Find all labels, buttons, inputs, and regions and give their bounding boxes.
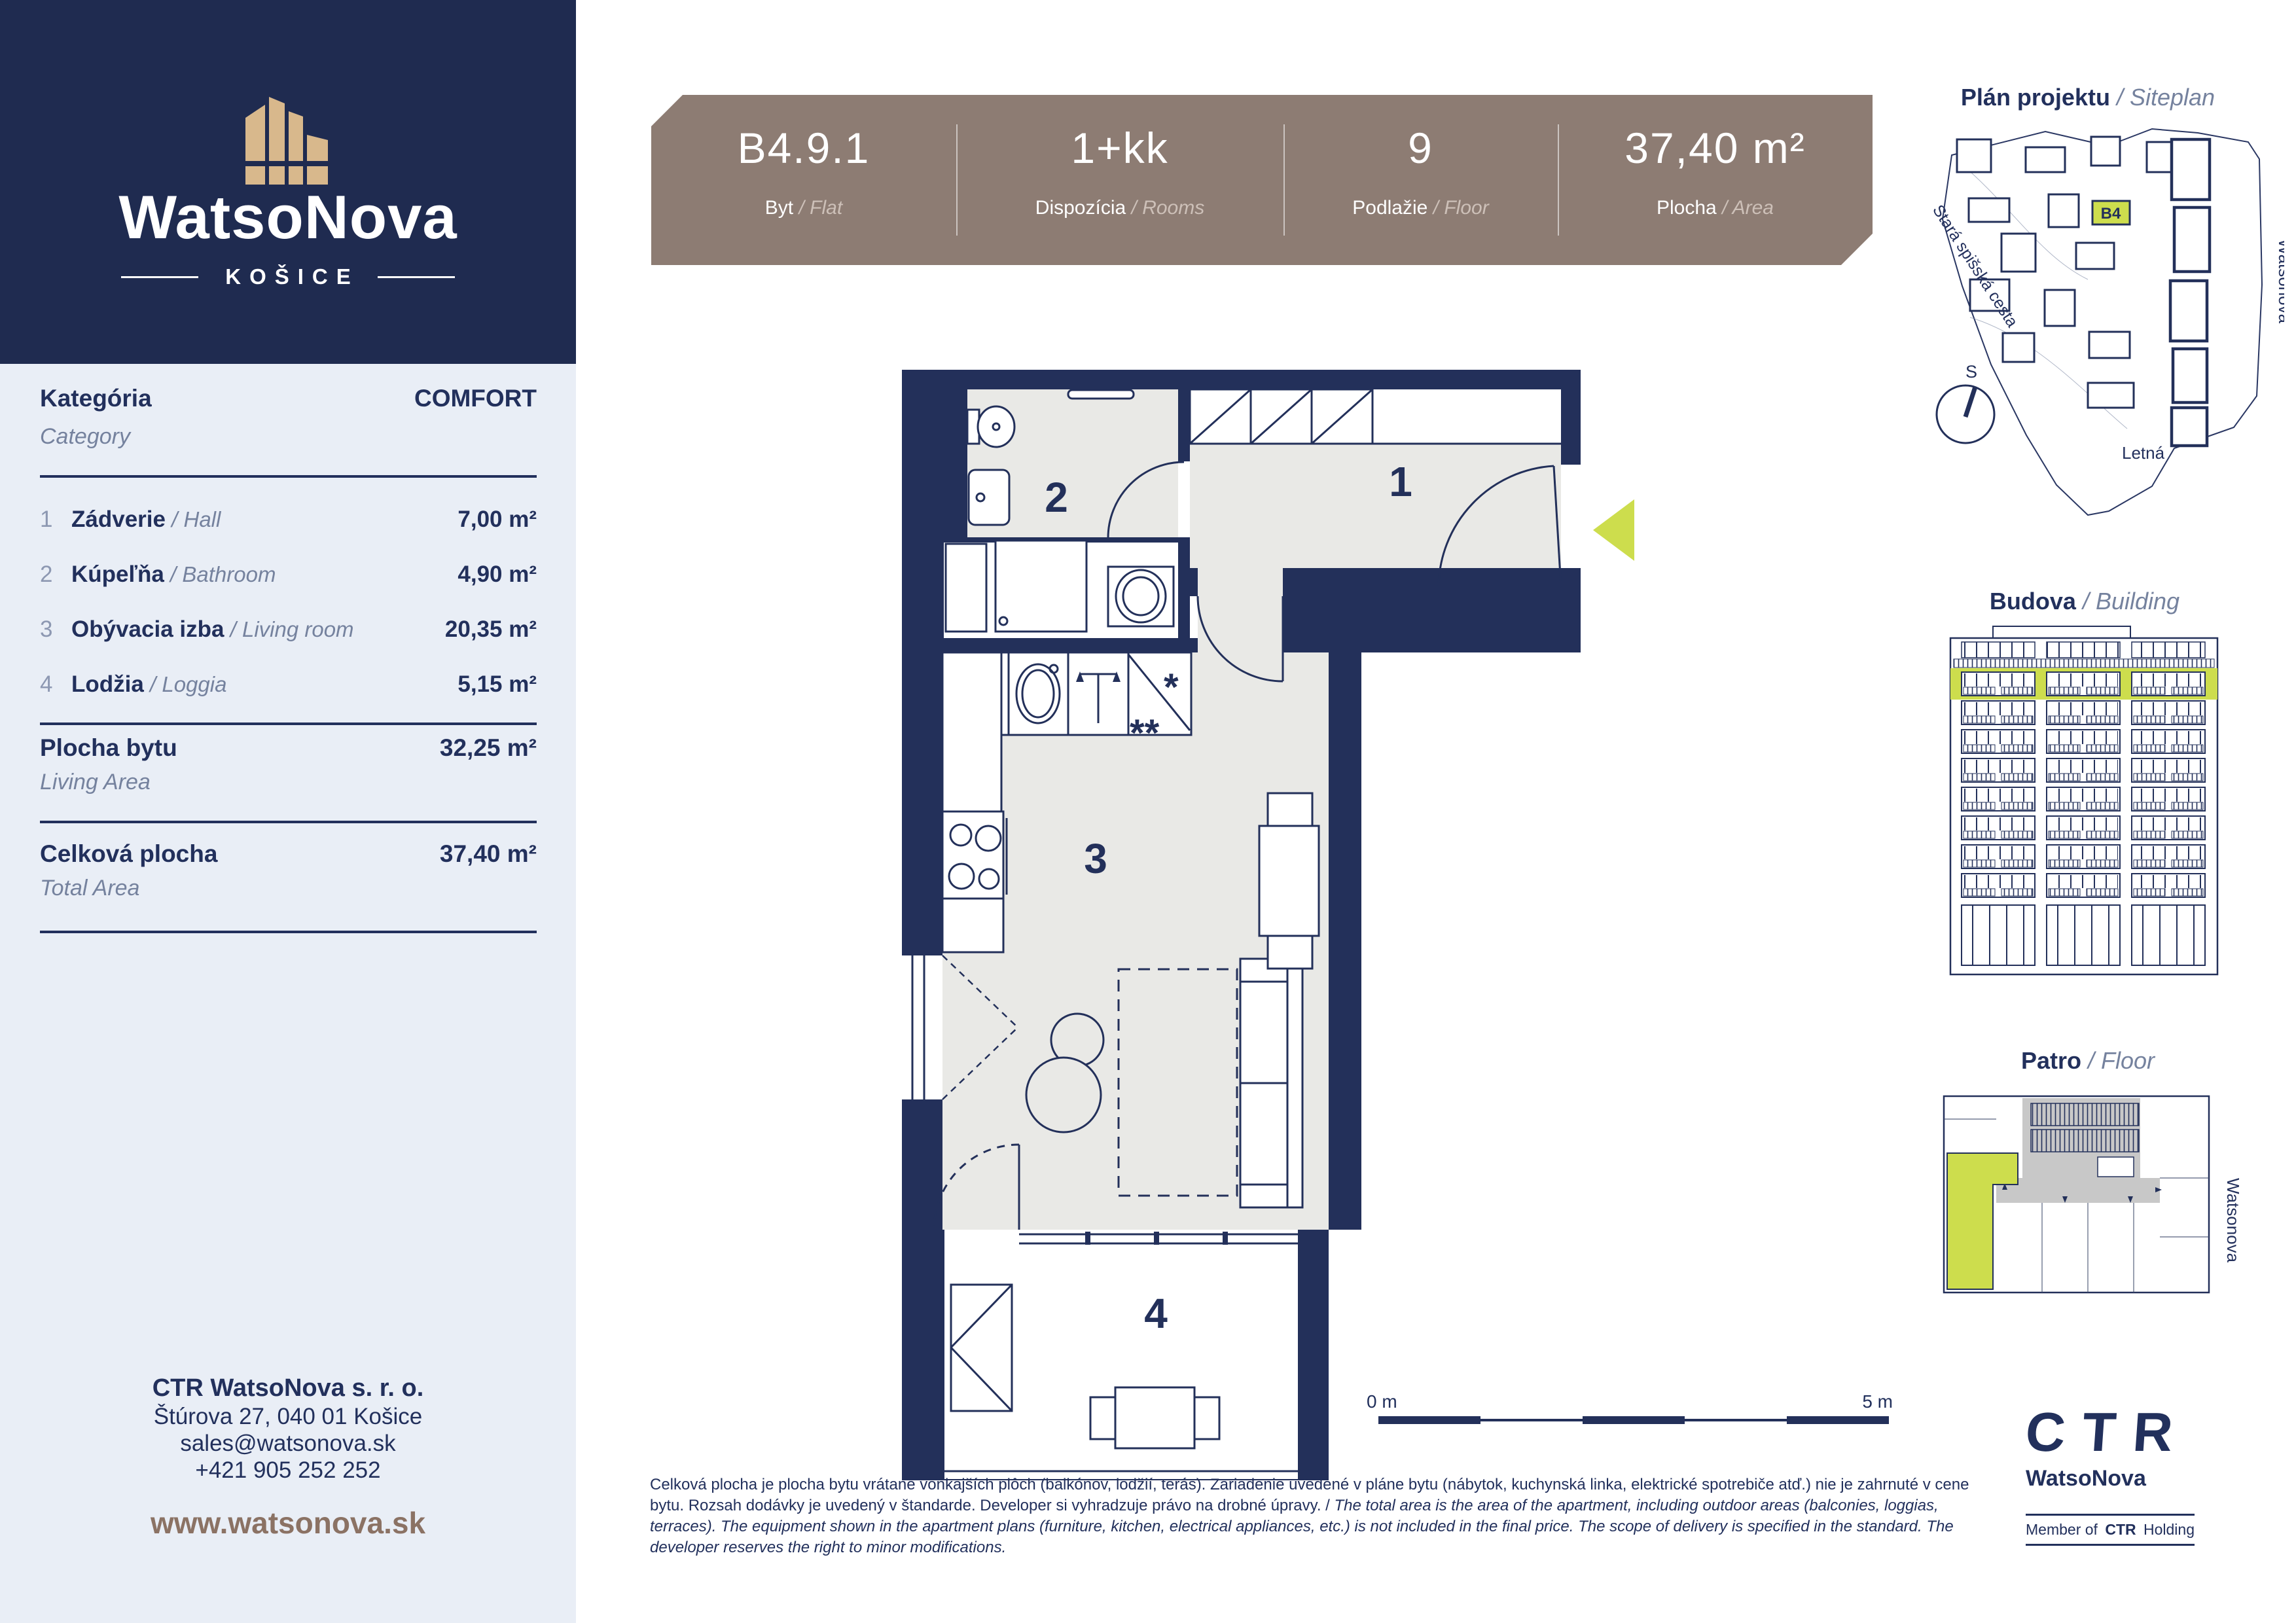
total-area-row: Celková plocha 37,40 m² — [40, 840, 537, 868]
siteplan-title: Plán projektu / Siteplan — [1892, 84, 2284, 111]
ctr-holding-logo: CTR WatsoNova Member of CTR Holding — [2026, 1404, 2235, 1546]
room-label-bath: 2 — [1045, 474, 1068, 521]
room-index: 3 — [40, 616, 71, 643]
loggia-chair — [1090, 1397, 1115, 1439]
logo-panel: WatsoNova KOŠICE — [0, 0, 576, 364]
chair — [1268, 793, 1312, 826]
room-label-hall: 1 — [1389, 458, 1412, 505]
loggia-unit — [951, 1285, 1012, 1411]
banner-divider — [1283, 124, 1285, 236]
lower-cabinet — [942, 899, 1003, 952]
ctr-logotype: CTR — [2024, 1404, 2237, 1459]
utility-cabinet — [996, 541, 1086, 632]
svg-text:*: * — [1164, 666, 1179, 709]
side-table — [1259, 826, 1319, 936]
decorative-line — [378, 276, 455, 278]
banner-col-flat: B4.9.1 Byt / Flat — [651, 95, 956, 265]
living-area-label-sk: Plocha bytu — [40, 734, 177, 762]
floorplate-diagram: Watsonova — [1934, 1080, 2242, 1309]
ctr-watsonova-label: WatsoNova — [2026, 1466, 2235, 1491]
siteplan-title-sk: Plán projektu — [1961, 84, 2110, 111]
apartment-floorplan: * ** 1 2 3 4 — [897, 366, 1643, 1486]
street-label-watsonova: Watsonova — [2275, 239, 2284, 324]
building-title: Budova / Building — [1947, 588, 2222, 615]
room-label-living: 3 — [1084, 835, 1107, 882]
room-name-en: Hall — [183, 507, 221, 531]
room-name-sk: Zádverie — [71, 507, 166, 533]
street-label-letna: Letná — [2122, 443, 2165, 463]
total-area-value: 37,40 m² — [440, 840, 537, 868]
contact-phone[interactable]: +421 905 252 252 — [0, 1457, 576, 1484]
category-row: Kategória COMFORT — [40, 385, 537, 412]
area-value: 37,40 m² — [1558, 126, 1873, 169]
living-area-label-en: Living Area — [40, 770, 151, 795]
towel-rail — [1068, 390, 1134, 399]
room-area: 4,90 m² — [457, 562, 537, 588]
living-area-row: Plocha bytu 32,25 m² — [40, 734, 537, 762]
room-row: 3 Obývacia izba / Living room 20,35 m² — [40, 616, 537, 643]
divider — [40, 931, 537, 933]
tall-cabinet — [942, 652, 1001, 811]
flat-id: B4.9.1 — [651, 126, 956, 169]
divider — [2026, 1514, 2195, 1516]
chair — [1026, 1058, 1101, 1132]
compass-north-label: S — [1965, 362, 1977, 382]
patro-title-sk: Patro — [2021, 1047, 2081, 1074]
room-area: 7,00 m² — [457, 507, 537, 533]
scale-bar: 0 m 5 m — [1361, 1391, 1898, 1437]
living-area-row-en: Living Area — [40, 770, 537, 795]
brand-city-row: KOŠICE — [0, 264, 576, 289]
scale-end-label: 5 m — [1862, 1391, 1893, 1412]
contact-website[interactable]: www.watsonova.sk — [0, 1505, 576, 1541]
banner-col-area: 37,40 m² Plocha / Area — [1558, 95, 1873, 265]
banner-divider — [1558, 124, 1559, 236]
toilet-bowl — [978, 406, 1014, 447]
apartment-header-banner: B4.9.1 Byt / Flat 1+kk Dispozícia / Room… — [651, 95, 1873, 265]
bathroom-sink — [969, 470, 1009, 525]
svg-text:**: ** — [1130, 712, 1160, 755]
patro-title-en: Floor — [2101, 1047, 2155, 1074]
room-label-loggia: 4 — [1144, 1290, 1168, 1337]
loggia-chair — [1194, 1397, 1219, 1439]
room-name-en: Loggia — [162, 672, 226, 696]
brand-city: KOŠICE — [217, 264, 359, 289]
contact-block: CTR WatsoNova s. r. o. Štúrova 27, 040 0… — [0, 1373, 576, 1484]
flat-label-en: Flat — [810, 197, 842, 219]
room-name-sk: Kúpeľňa — [71, 562, 164, 588]
siteplan-title-en: Siteplan — [2130, 84, 2215, 111]
unit-b4-label: B4 — [2101, 205, 2121, 223]
flat-label-sk: Byt — [765, 197, 793, 219]
sidebar: WatsoNova KOŠICE Kategória COMFORT Categ… — [0, 0, 576, 1623]
washing-machine — [1108, 567, 1174, 626]
building-logo-icon — [245, 92, 331, 190]
brand-title: WatsoNova — [0, 182, 576, 253]
banner-col-floor: 9 Podlažie / Floor — [1283, 95, 1558, 265]
category-row-en: Category — [40, 424, 537, 450]
room-area: 5,15 m² — [457, 671, 537, 698]
entrance-arrow-icon — [1593, 499, 1634, 561]
category-label-sk: Kategória — [40, 385, 152, 412]
stove — [942, 811, 1003, 899]
siteplan-drawing: B4 S Stará spišská cesta Watsonova Letná — [1892, 121, 2284, 527]
room-area: 20,35 m² — [445, 616, 537, 643]
loggia-table — [1115, 1387, 1194, 1448]
contact-email[interactable]: sales@watsonova.sk — [0, 1430, 576, 1457]
site-boundary — [1943, 129, 2262, 515]
rooms-value: 1+kk — [956, 126, 1283, 169]
room-index: 2 — [40, 562, 71, 588]
banner-divider — [956, 124, 958, 236]
area-label-en: Area — [1732, 197, 1774, 219]
rooms-label-en: Rooms — [1142, 197, 1204, 219]
building-title-en: Building — [2096, 588, 2179, 615]
room-row: 2 Kúpeľňa / Bathroom 4,90 m² — [40, 562, 537, 588]
room-name-sk: Lodžia — [71, 671, 144, 698]
floor-value: 9 — [1283, 126, 1558, 169]
category-label-en: Category — [40, 424, 130, 450]
rooms-label-sk: Dispozícia — [1035, 197, 1126, 219]
chair — [1268, 936, 1312, 969]
room-name-en: Bathroom — [182, 562, 276, 586]
room-row: 1 Zádverie / Hall 7,00 m² — [40, 507, 537, 533]
patro-street-watsonova: Watsonova — [2223, 1178, 2242, 1263]
patro-title: Patro / Floor — [1934, 1047, 2242, 1075]
building-elevation — [1947, 618, 2222, 978]
contact-address: Štúrova 27, 040 01 Košice — [0, 1403, 576, 1430]
brochure-page: WatsoNova KOŠICE Kategória COMFORT Categ… — [0, 0, 2296, 1623]
divider — [40, 475, 537, 478]
divider — [40, 821, 537, 823]
room-row: 4 Lodžia / Loggia 5,15 m² — [40, 671, 537, 698]
total-area-row-en: Total Area — [40, 876, 537, 901]
living-area-value: 32,25 m² — [440, 734, 537, 762]
floor-label-sk: Podlažie — [1352, 197, 1427, 219]
divider — [40, 722, 537, 725]
room-name-en: Living room — [242, 617, 354, 641]
contact-company: CTR WatsoNova s. r. o. — [0, 1373, 576, 1403]
building-title-sk: Budova — [1990, 588, 2076, 615]
room-index: 4 — [40, 671, 71, 698]
total-area-label-en: Total Area — [40, 876, 139, 901]
area-label-sk: Plocha — [1657, 197, 1717, 219]
total-area-label-sk: Celková plocha — [40, 840, 217, 868]
floor-label-en: Floor — [1444, 197, 1488, 219]
scale-start-label: 0 m — [1367, 1391, 1397, 1412]
category-value: COMFORT — [414, 385, 537, 412]
utility-cabinet — [946, 544, 986, 632]
banner-col-rooms: 1+kk Dispozícia / Rooms — [956, 95, 1283, 265]
decorative-line — [121, 276, 198, 278]
disclaimer-text: Celková plocha je plocha bytu vrátane vo… — [650, 1474, 1979, 1558]
room-index: 1 — [40, 507, 71, 533]
member-of-holding: Member of CTR Holding — [2026, 1521, 2195, 1539]
divider — [2026, 1544, 2195, 1546]
room-name-sk: Obývacia izba — [71, 616, 224, 643]
